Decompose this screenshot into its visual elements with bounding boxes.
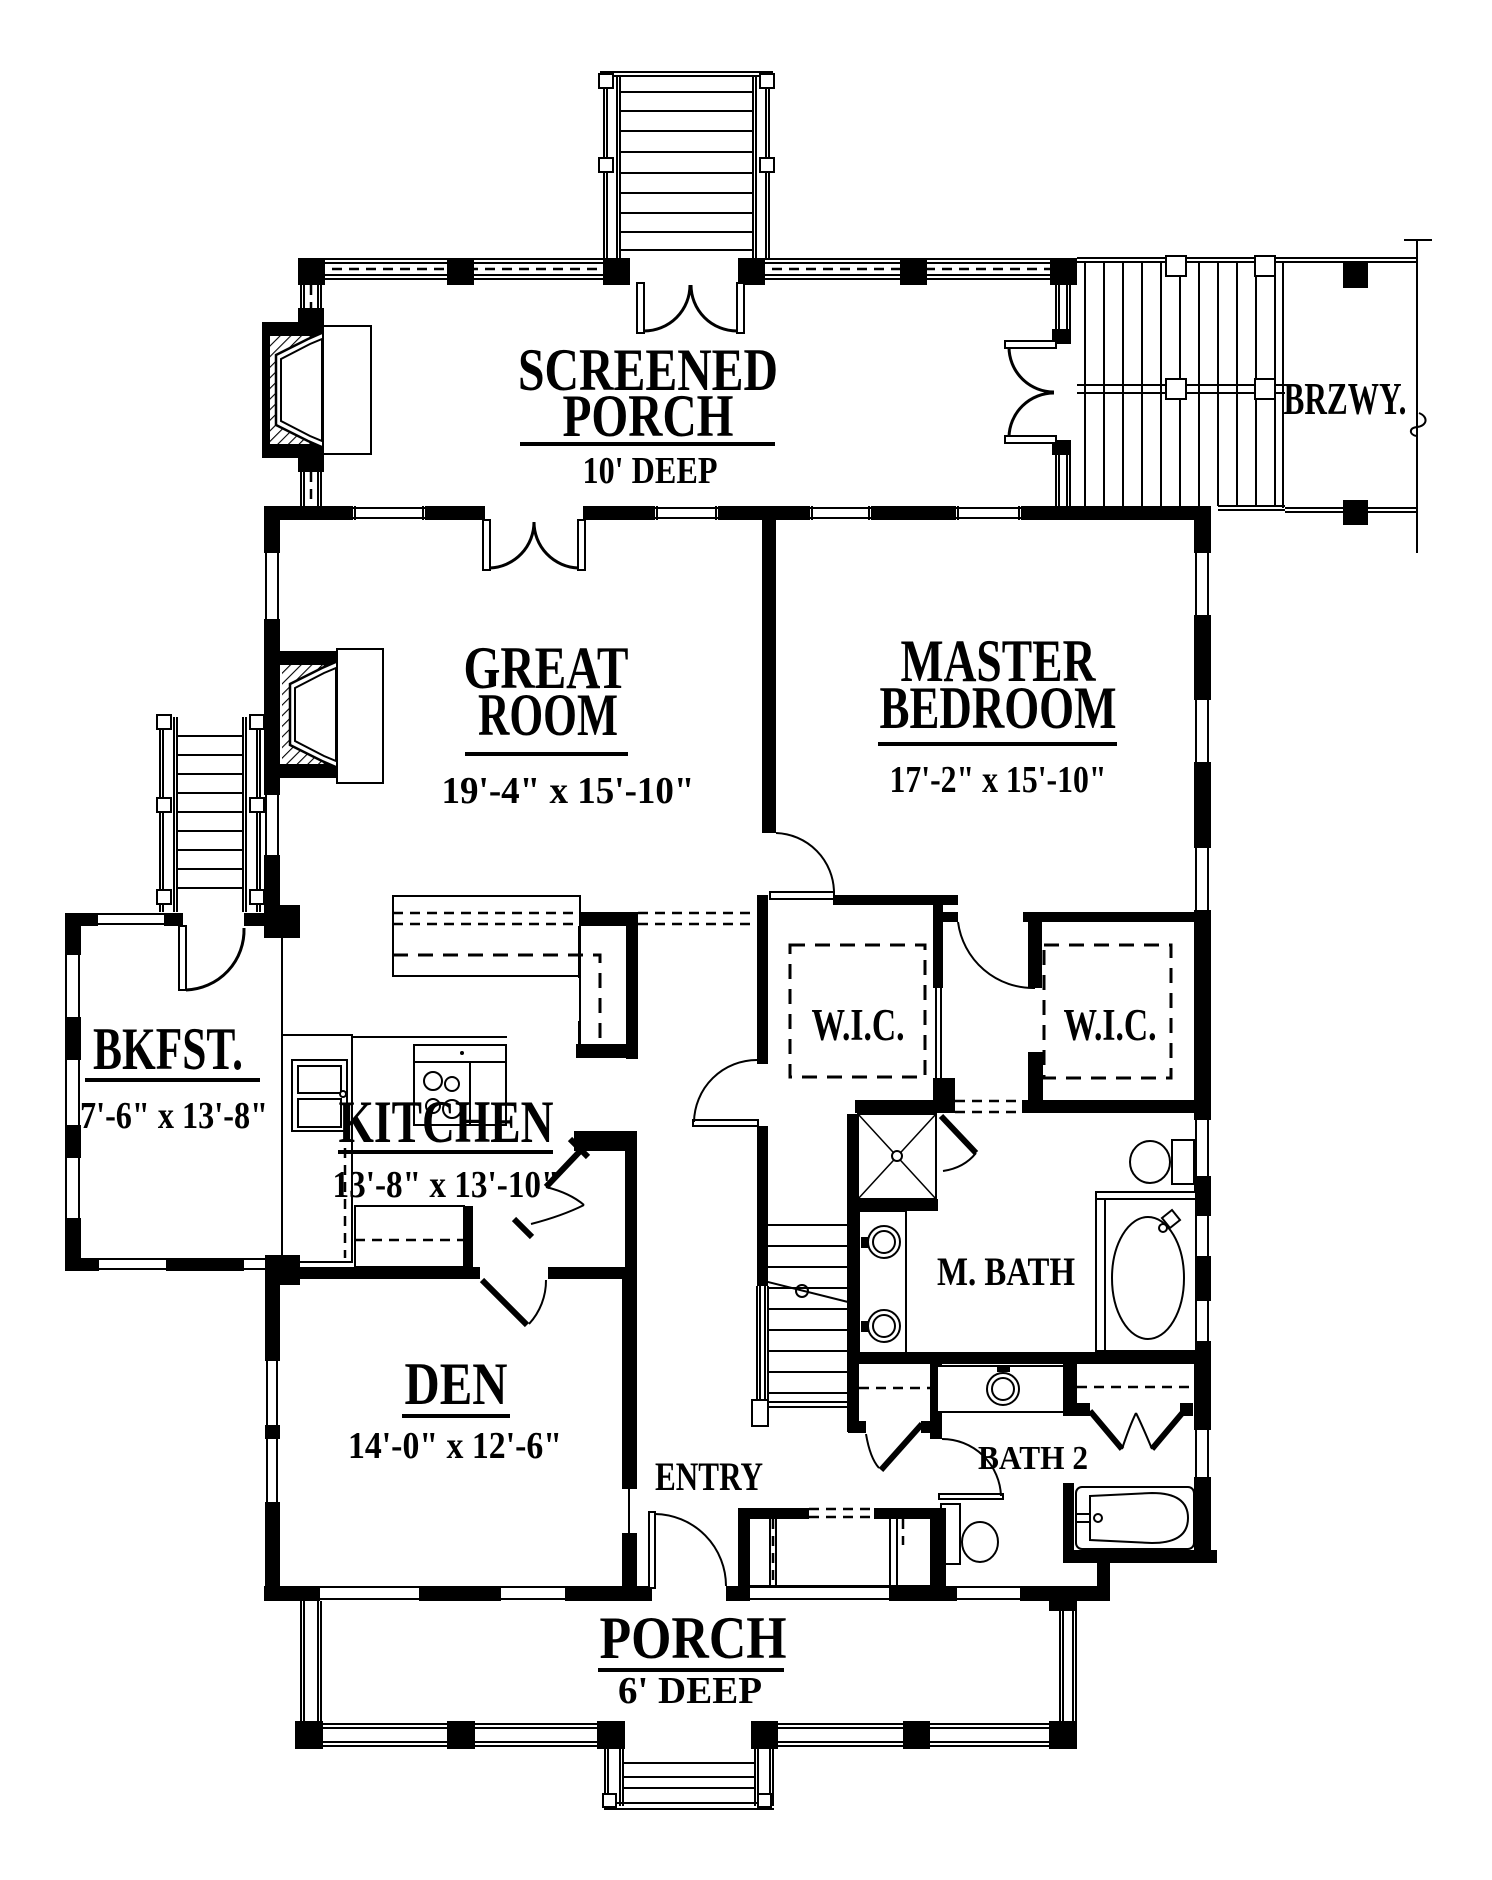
svg-text:10' DEEP: 10' DEEP (583, 450, 718, 492)
svg-text:BRZWY.: BRZWY. (1284, 373, 1407, 424)
svg-text:7'-6" x 13'-8": 7'-6" x 13'-8" (80, 1095, 268, 1137)
svg-text:W.I.C.: W.I.C. (812, 1000, 905, 1050)
svg-text:BATH 2: BATH 2 (978, 1440, 1088, 1477)
svg-text:ENTRY: ENTRY (655, 1454, 763, 1499)
svg-text:W.I.C.: W.I.C. (1064, 1000, 1157, 1050)
svg-text:PORCH: PORCH (600, 1605, 787, 1671)
svg-text:KITCHEN: KITCHEN (339, 1089, 554, 1155)
svg-text:17'-2" x 15'-10": 17'-2" x 15'-10" (890, 759, 1107, 801)
svg-text:BEDROOM: BEDROOM (880, 675, 1117, 741)
svg-text:6' DEEP: 6' DEEP (618, 1670, 762, 1712)
svg-text:M. BATH: M. BATH (937, 1249, 1075, 1294)
svg-text:BKFST.: BKFST. (93, 1016, 243, 1082)
svg-text:PORCH: PORCH (563, 383, 734, 449)
svg-text:19'-4" x 15'-10": 19'-4" x 15'-10" (442, 770, 695, 812)
svg-text:13'-8" x 13'-10": 13'-8" x 13'-10" (333, 1164, 560, 1206)
svg-text:ROOM: ROOM (478, 682, 618, 748)
svg-text:14'-0" x 12'-6": 14'-0" x 12'-6" (348, 1425, 562, 1467)
svg-text:DEN: DEN (405, 1351, 508, 1417)
